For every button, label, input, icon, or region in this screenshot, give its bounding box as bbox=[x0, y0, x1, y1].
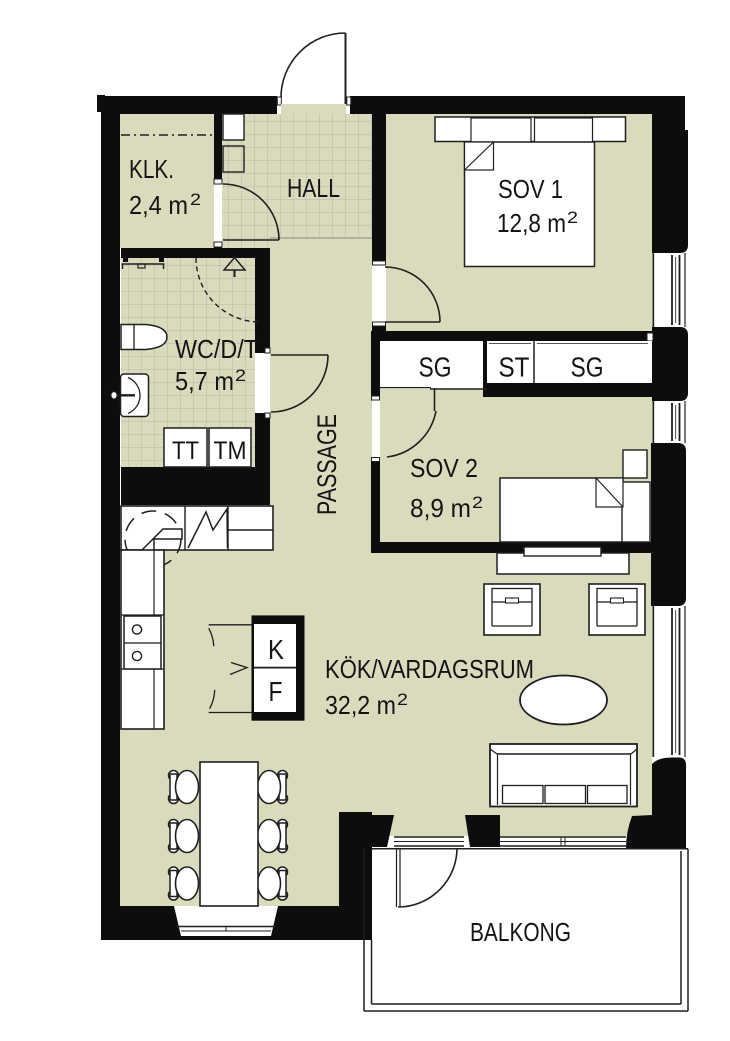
svg-text:PASSAGE: PASSAGE bbox=[312, 414, 342, 515]
svg-text:SG: SG bbox=[419, 352, 452, 383]
svg-text:TM: TM bbox=[214, 437, 247, 465]
svg-text:2: 2 bbox=[397, 690, 408, 709]
svg-text:5,7 m: 5,7 m bbox=[175, 366, 234, 396]
svg-text:SOV 2: SOV 2 bbox=[410, 453, 478, 483]
svg-text:2: 2 bbox=[235, 366, 246, 385]
svg-text:TT: TT bbox=[172, 437, 199, 465]
svg-text:32,2 m: 32,2 m bbox=[325, 690, 396, 720]
svg-text:8,9 m: 8,9 m bbox=[410, 493, 471, 523]
svg-text:2: 2 bbox=[190, 190, 201, 209]
svg-text:2: 2 bbox=[472, 493, 483, 512]
svg-text:WC/D/T: WC/D/T bbox=[175, 334, 258, 364]
svg-text:K: K bbox=[268, 634, 284, 665]
svg-text:ST: ST bbox=[499, 352, 530, 383]
svg-text:SOV 1: SOV 1 bbox=[498, 174, 563, 204]
svg-text:SG: SG bbox=[571, 352, 604, 383]
svg-text:KÖK/VARDAGSRUM: KÖK/VARDAGSRUM bbox=[325, 654, 534, 684]
svg-text:F: F bbox=[269, 676, 283, 707]
svg-text:HALL: HALL bbox=[287, 173, 340, 203]
svg-text:2,4 m: 2,4 m bbox=[129, 190, 188, 220]
svg-text:BALKONG: BALKONG bbox=[470, 917, 571, 947]
svg-text:KLK.: KLK. bbox=[129, 154, 174, 184]
svg-text:12,8 m: 12,8 m bbox=[497, 208, 566, 238]
svg-text:2: 2 bbox=[567, 208, 578, 227]
